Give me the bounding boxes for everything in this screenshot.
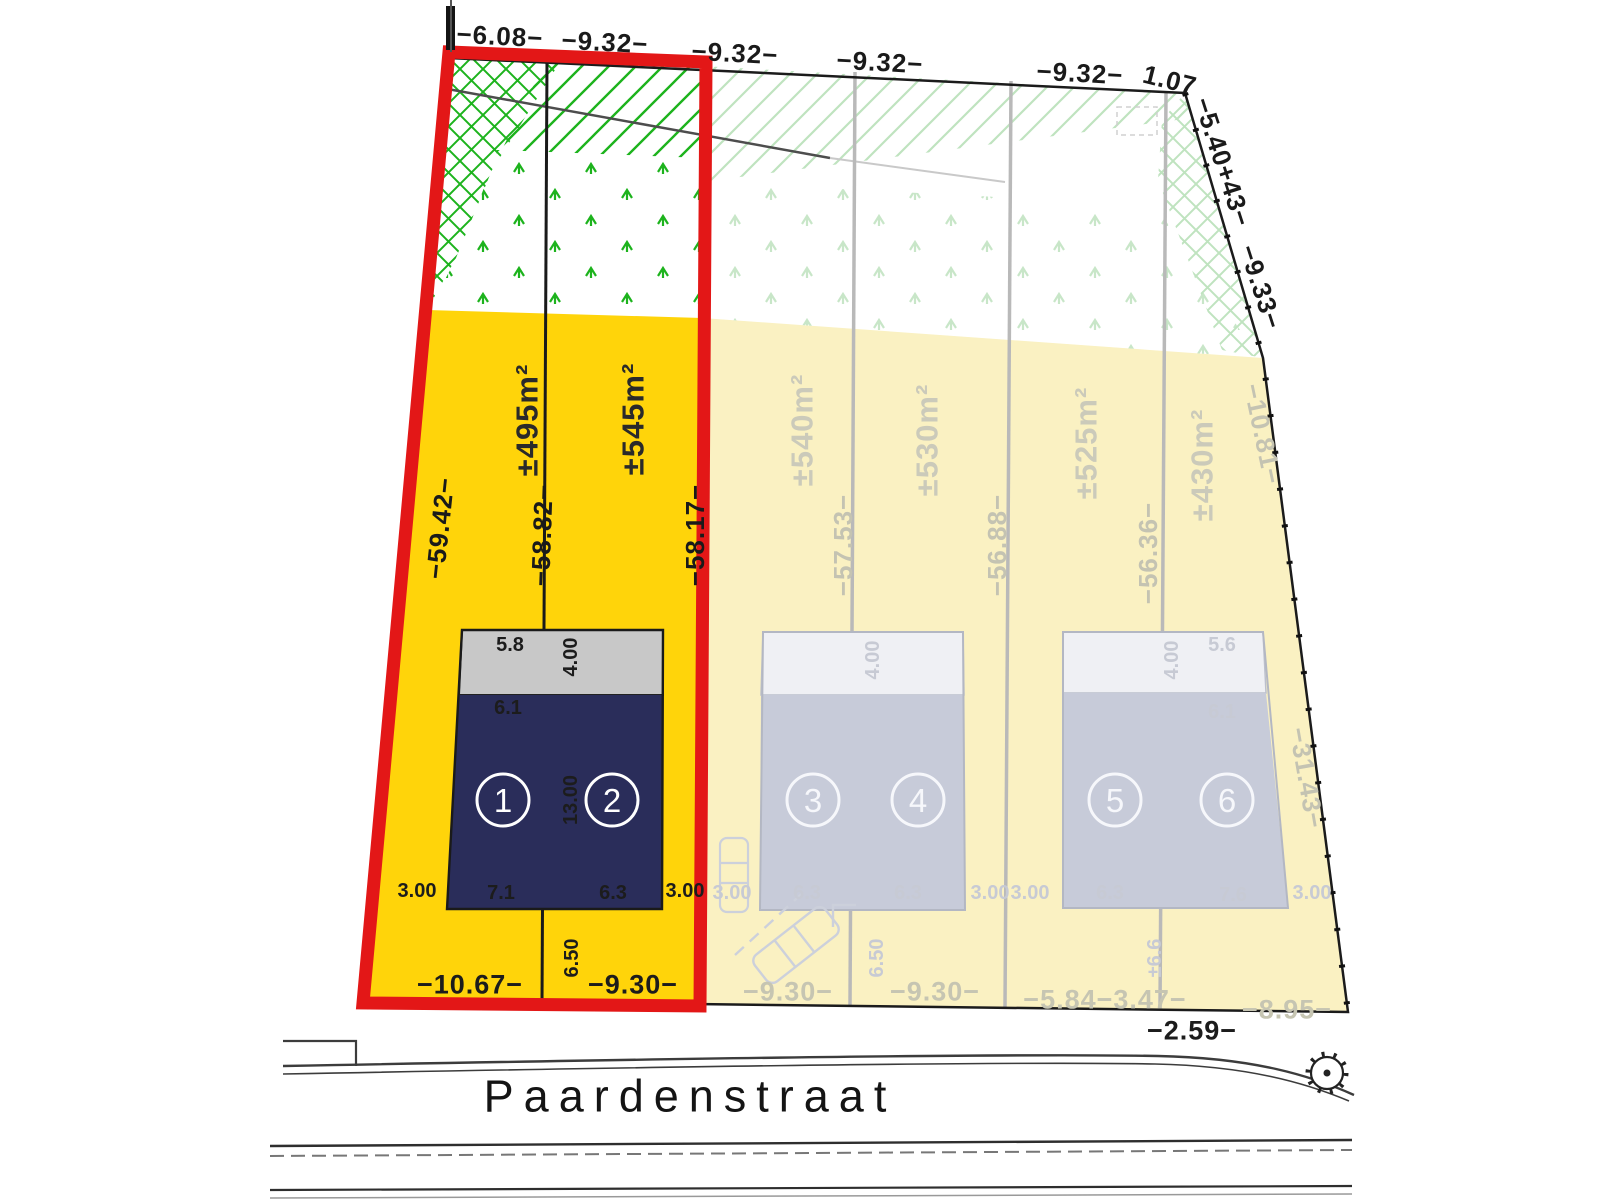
plot-6-bottom-dim: −8.95− (1242, 997, 1332, 1024)
top-dim-3: −9.32− (691, 38, 779, 69)
top-dim-4: −9.32− (836, 47, 924, 78)
site-plan: 1 2 3 4 5 6 −6.08− −9.32− −9.32− −9.32− … (0, 0, 1600, 1200)
plot-5-area: ±525m² (1071, 387, 1102, 500)
b34-setback-right: 3.00 (971, 883, 1010, 903)
plot-5-number: 5 (1106, 782, 1124, 819)
plot-1-number: 1 (494, 782, 512, 819)
b56-bottom-width-left: 6.3 (1096, 883, 1124, 903)
plot-5-right-dim: −56.36− (1135, 502, 1161, 604)
b12-bottom-width-right: 6.3 (599, 883, 627, 903)
b12-garage-depth: 4.00 (561, 638, 581, 677)
b12-top-width: 5.8 (496, 635, 524, 655)
garden-zone-highlighted (427, 58, 702, 316)
plot-2-area: ±545m² (618, 363, 649, 476)
b12-inner-width: 6.1 (494, 698, 522, 718)
b34-bottom-width-left: 6.3 (793, 883, 821, 903)
plot-3-right-dim: −57.53− (830, 494, 856, 596)
b56-inner-width: 6.1 (1208, 702, 1236, 722)
plot-4-number: 4 (909, 782, 927, 819)
plot-4-bottom-dim: −9.30− (890, 979, 980, 1006)
plot-3-bottom-dim: −9.30− (743, 979, 833, 1006)
plot-2-bottom-dim: −9.30− (588, 972, 678, 999)
b12-bottom-width-left: 7.1 (487, 883, 515, 903)
b34-bottom-width-right: 6.3 (894, 883, 922, 903)
plot-3-number: 3 (804, 782, 822, 819)
top-dim-5: −9.32− (1036, 58, 1124, 89)
b56-front-setback: ±6.6 (1145, 939, 1165, 978)
plot-1-right-dim: −58.82− (527, 483, 557, 586)
b56-top-width: 5.6 (1208, 635, 1236, 655)
b56-setback-left: 3.00 (1011, 883, 1050, 903)
survey-marker-icon (1308, 1054, 1346, 1092)
b56-bottom-width-right: 7.6 (1219, 885, 1247, 905)
plot-6-area: ±430m² (1187, 409, 1218, 522)
site-plan-drawing: 1 2 3 4 5 6 (0, 0, 1600, 1200)
b34-setback-left: 3.00 (713, 883, 752, 903)
boundary-post (446, 0, 455, 52)
plot-4-area: ±530m² (912, 384, 943, 497)
b34-garage-depth: 4.00 (863, 641, 883, 680)
plot-5-bottom-dim: −5.84−3.47− (1023, 987, 1186, 1014)
garden-zone-muted (702, 66, 1263, 358)
building-1-2 (447, 630, 663, 909)
plot-2-right-dim: −58.17− (682, 484, 708, 586)
top-dim-1: −6.08− (456, 21, 544, 52)
plot-1-bottom-dim: −10.67− (417, 972, 523, 999)
plot-6-number: 6 (1218, 782, 1236, 819)
b12-setback-left: 3.00 (398, 881, 437, 901)
bottom-edge-dim: −2.59− (1147, 1018, 1237, 1045)
b56-setback-right: 3.00 (1293, 883, 1332, 903)
b34-front-setback: 6.50 (867, 939, 887, 978)
plot-3-area: ±540m² (787, 374, 818, 487)
b56-garage-depth: 4.00 (1162, 641, 1182, 680)
top-dim-2: −9.32− (561, 27, 649, 58)
b12-main-depth: 13.00 (561, 775, 581, 825)
plot-4-right-dim: −56.88− (984, 494, 1010, 596)
street-name: Paardenstraat (484, 1074, 897, 1119)
plot-2-number: 2 (603, 782, 621, 819)
b12-front-setback: 6.50 (562, 939, 582, 978)
plot-1-area: ±495m² (512, 364, 543, 477)
b12-setback-right: 3.00 (666, 881, 705, 901)
